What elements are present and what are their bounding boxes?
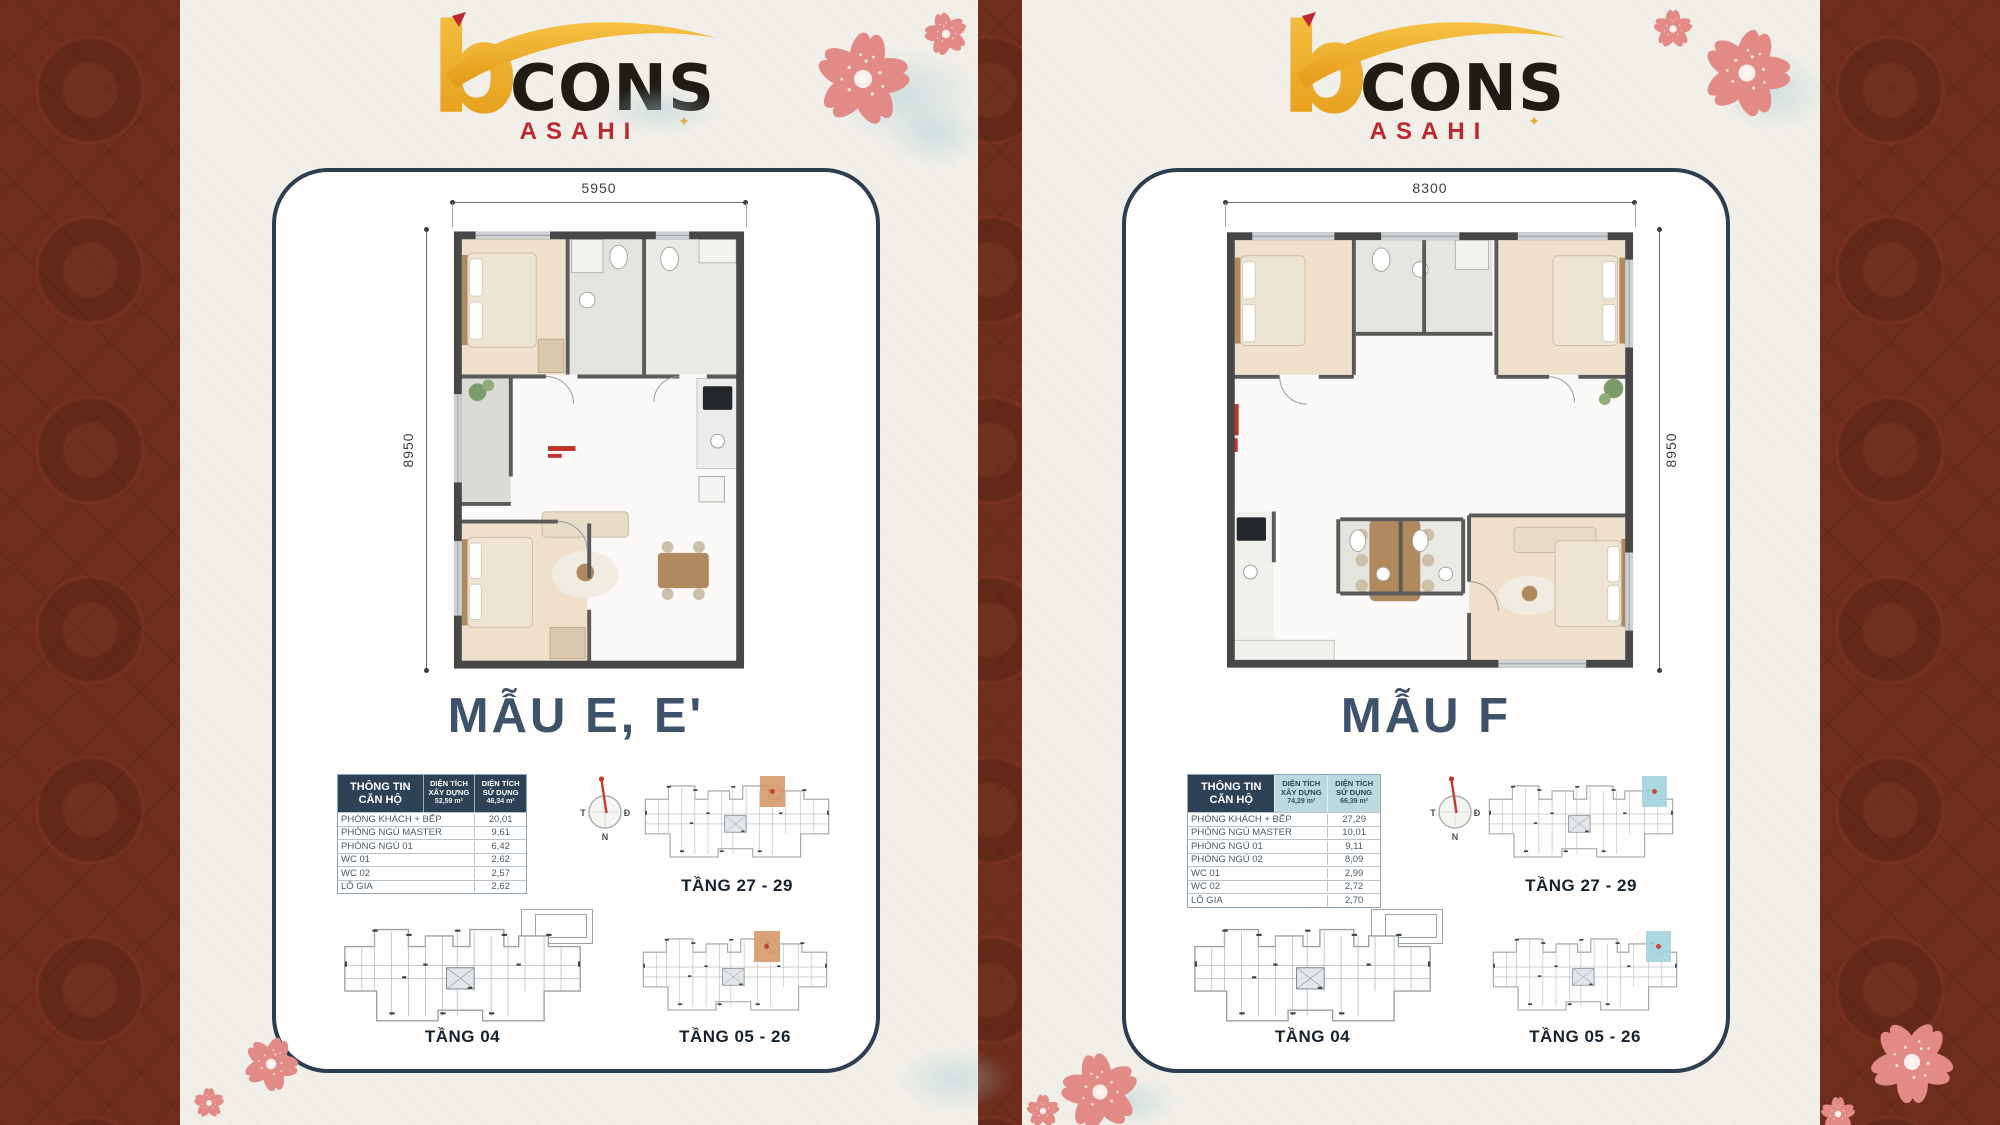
table-row: WC 012,62: [338, 853, 526, 867]
floor-label: TẦNG 04: [1186, 1027, 1439, 1047]
highlight-unit: [754, 931, 780, 962]
unit-card-f: 8300 8950: [1122, 168, 1730, 1073]
svg-text:Đ: Đ: [1474, 808, 1481, 818]
highlight-unit: [1646, 931, 1672, 962]
cloud-deco: [898, 1048, 1013, 1110]
svg-text:N: N: [602, 832, 609, 842]
unit-card-e: 5950 8950: [272, 168, 880, 1073]
unit-info-table: THÔNG TINCĂN HỘ DIỆN TÍCHXÂY DỰNG 74,29 …: [1187, 774, 1381, 908]
highlight-unit: [1642, 776, 1668, 807]
header-usable-area: DIỆN TÍCHSỬ DỤNG 46,34 m²: [474, 775, 526, 812]
unit-info-table: THÔNG TINCĂN HỘ DIỆN TÍCHXÂY DỰNG 52,59 …: [337, 774, 527, 894]
sakura-icon: [1020, 1088, 1066, 1125]
table-row: PHÒNG NGỦ MASTER9,61: [338, 826, 526, 840]
sakura-icon: [1646, 2, 1700, 56]
brand-logo: b CONS ASAHI ✦: [1280, 10, 1570, 168]
svg-text:CONS: CONS: [1360, 52, 1565, 122]
table-row: LÔ GIA2,62: [338, 880, 526, 894]
unit-title: MẪU F: [1126, 688, 1726, 744]
dim-width-label: 5950: [452, 180, 746, 196]
page: b CONS ASAHI ✦ 5950 8950: [0, 0, 2000, 1125]
table-row: LÔ GIA2,70: [1188, 893, 1380, 907]
header-info: THÔNG TINCĂN HỘ: [338, 775, 423, 812]
mini-floorplan-04: [1186, 919, 1439, 1025]
table-row: PHÒNG NGỦ MASTER10,01: [1188, 826, 1380, 840]
header-info: THÔNG TINCĂN HỘ: [1188, 775, 1274, 812]
sparkle-icon: ✦: [1528, 113, 1540, 130]
svg-text:T: T: [1430, 808, 1436, 818]
floor-plan-e: [452, 229, 746, 671]
svg-text:Đ: Đ: [624, 808, 631, 818]
table-row: PHÒNG NGỦ 019,11: [1188, 839, 1380, 853]
header-built-area: DIỆN TÍCHXÂY DỰNG 74,29 m²: [1274, 775, 1327, 812]
table-row: WC 012,99: [1188, 866, 1380, 880]
table-header: THÔNG TINCĂN HỘ DIỆN TÍCHXÂY DỰNG 74,29 …: [1188, 775, 1380, 812]
floor-label: TẦNG 27 - 29: [1486, 876, 1676, 896]
entry-door-marker: [548, 446, 575, 451]
bcons-logo-icon: b CONS: [1280, 10, 1570, 122]
dim-height-label: 8950: [400, 410, 416, 490]
table-row: WC 022,57: [338, 866, 526, 880]
cloud-deco: [600, 86, 720, 134]
table-row: PHÒNG NGỦ 028,09: [1188, 853, 1380, 867]
logo-asahi: ASAHI: [1280, 118, 1570, 146]
table-header: THÔNG TINCĂN HỘ DIỆN TÍCHXÂY DỰNG 52,59 …: [338, 775, 526, 812]
mini-floorplan-27-29: [1486, 769, 1676, 869]
table-row: PHÒNG KHÁCH + BẾP20,01: [338, 812, 526, 826]
dim-line-width: [452, 202, 746, 203]
mini-floorplan-05-26: [1490, 922, 1680, 1022]
sakura-icon: [1814, 1090, 1862, 1125]
compass-icon: Đ N T: [1426, 772, 1484, 842]
floor-label: TẦNG 05 - 26: [640, 1027, 830, 1047]
table-row: PHÒNG NGỦ 016,42: [338, 839, 526, 853]
dim-line-width: [1225, 202, 1635, 203]
sakura-icon: [188, 1082, 230, 1124]
unit-title: MẪU E, E': [276, 688, 876, 744]
floor-label: TẦNG 04: [336, 1027, 589, 1047]
dim-line-height: [426, 229, 427, 671]
dim-width-label: 8300: [1225, 180, 1635, 196]
highlight-unit: [760, 776, 786, 807]
header-built-area: DIỆN TÍCHXÂY DỰNG 52,59 m²: [423, 775, 475, 812]
dim-height-label: 8950: [1663, 410, 1679, 490]
floor-label: TẦNG 05 - 26: [1490, 1027, 1680, 1047]
table-row: PHÒNG KHÁCH + BẾP27,29: [1188, 812, 1380, 826]
table-row: WC 022,72: [1188, 880, 1380, 894]
left-page-panel: b CONS ASAHI ✦ 5950 8950: [180, 0, 978, 1125]
svg-text:N: N: [1452, 832, 1459, 842]
right-page-panel: b CONS ASAHI ✦ 8300 8950: [1022, 0, 1820, 1125]
header-usable-area: DIỆN TÍCHSỬ DỤNG 66,39 m²: [1327, 775, 1380, 812]
compass-icon: Đ N T: [576, 772, 634, 842]
dim-line-height: [1659, 229, 1660, 671]
floor-label: TẦNG 27 - 29: [642, 876, 832, 896]
floor-plan-f: [1225, 229, 1635, 671]
mini-floorplan-04: [336, 919, 589, 1025]
mini-floorplan-27-29: [642, 769, 832, 869]
svg-text:T: T: [580, 808, 586, 818]
mini-floorplan-05-26: [640, 922, 830, 1022]
